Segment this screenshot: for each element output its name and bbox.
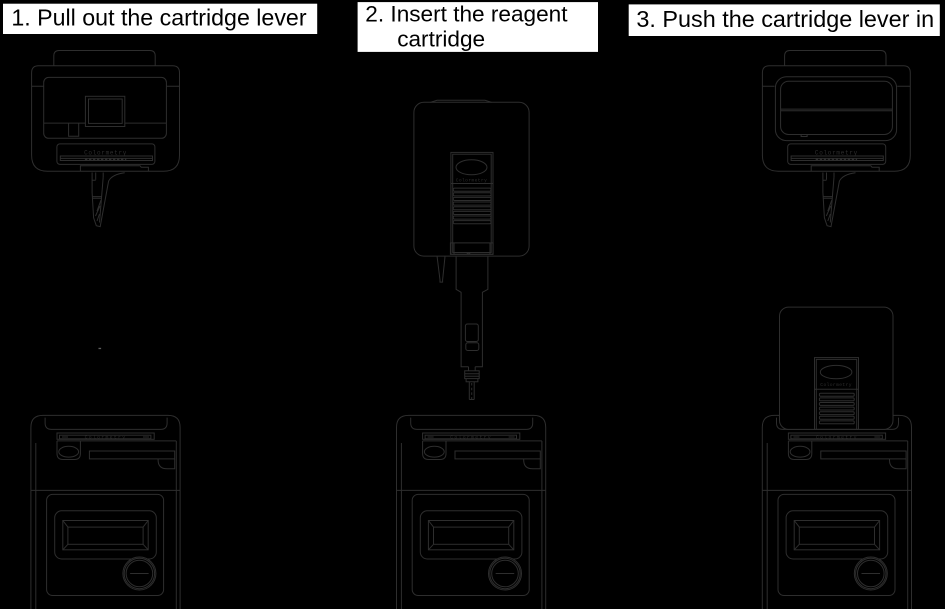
svg-text:Colormetry: Colormetry — [85, 435, 127, 441]
svg-text:Colormetry: Colormetry — [820, 382, 852, 388]
svg-text:3. Push the cartridge lever in: 3. Push the cartridge lever in — [636, 6, 934, 32]
svg-text:Colormetry: Colormetry — [815, 149, 858, 156]
svg-text:Colormetry: Colormetry — [450, 435, 492, 441]
svg-text:Colormetry: Colormetry — [456, 178, 488, 184]
svg-text:2. Insert the reagent: 2. Insert the reagent — [365, 2, 568, 27]
svg-text:1. Pull out the cartridge leve: 1. Pull out the cartridge lever — [11, 5, 306, 31]
svg-text:Colormetry: Colormetry — [816, 435, 858, 441]
svg-text:Colormetry: Colormetry — [84, 149, 127, 156]
svg-text:cartridge: cartridge — [397, 27, 485, 52]
